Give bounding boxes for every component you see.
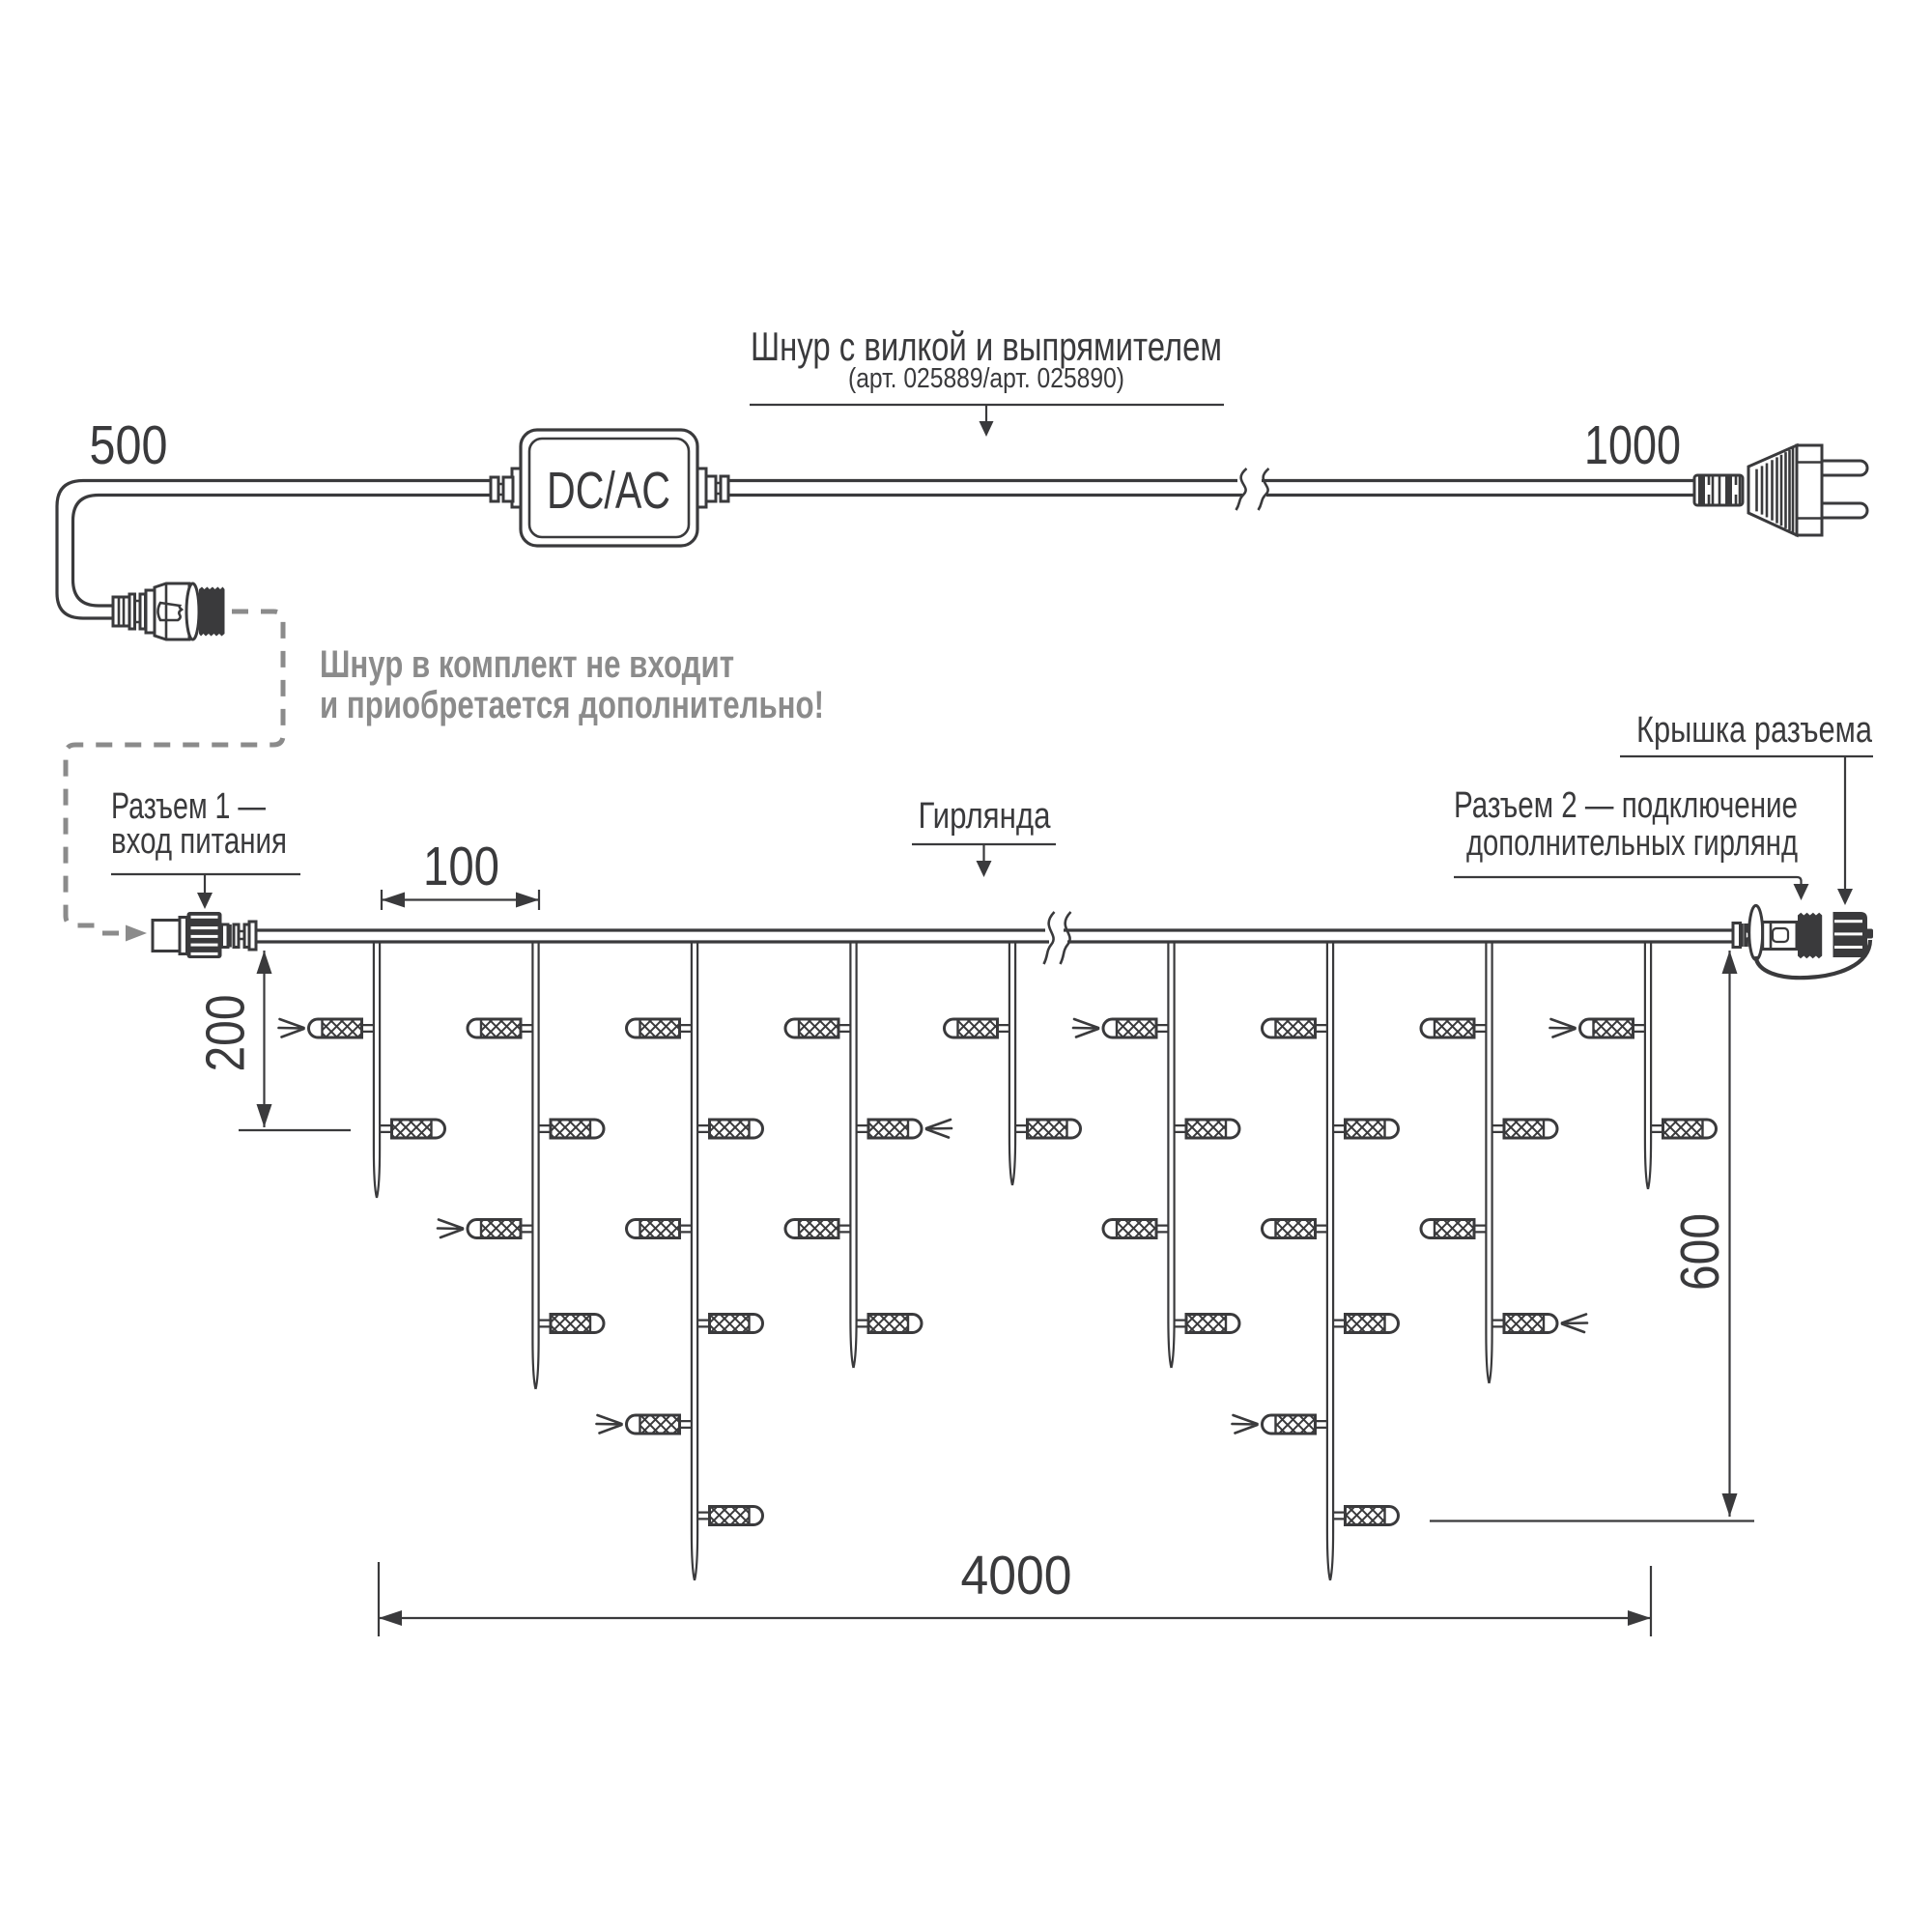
svg-text:DC/AC: DC/AC	[547, 462, 670, 520]
svg-text:100: 100	[423, 836, 499, 897]
svg-text:дополнительных гирлянд: дополнительных гирлянд	[1466, 823, 1798, 864]
svg-text:500: 500	[90, 414, 168, 476]
svg-text:Разъем 2 — подключение: Разъем 2 — подключение	[1454, 785, 1798, 826]
svg-text:600: 600	[1669, 1213, 1731, 1291]
svg-text:1000: 1000	[1584, 414, 1681, 476]
svg-text:(арт. 025889/арт. 025890): (арт. 025889/арт. 025890)	[848, 363, 1124, 394]
svg-text:Гирлянда: Гирлянда	[919, 796, 1052, 837]
svg-text:200: 200	[195, 995, 257, 1072]
svg-text:Шнур с вилкой и выпрямителем: Шнур с вилкой и выпрямителем	[751, 324, 1222, 369]
svg-text:Крышка разъема: Крышка разъема	[1636, 710, 1873, 751]
svg-text:вход питания: вход питания	[111, 821, 287, 862]
svg-text:4000: 4000	[961, 1545, 1072, 1606]
svg-text:Шнур в комплект не входит: Шнур в комплект не входит	[320, 643, 734, 686]
svg-text:и приобретается дополнительно!: и приобретается дополнительно!	[320, 684, 824, 726]
